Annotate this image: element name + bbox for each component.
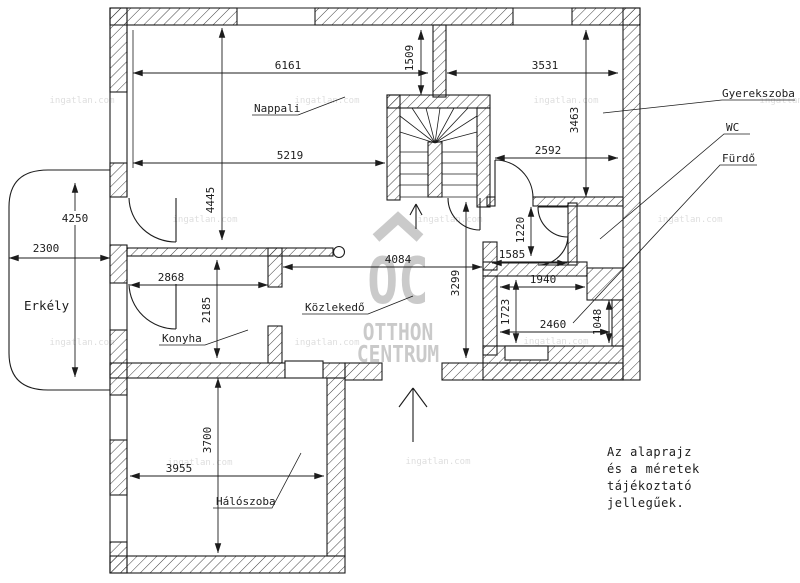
floorplan-document: ingatlan.comingatlan.comingatlan.cominga… — [0, 0, 800, 583]
watermark-site-text: ingatlan.com — [405, 457, 470, 467]
wall-segment — [533, 197, 623, 206]
door-arc-wc-lower — [538, 235, 568, 265]
stair-wall — [477, 108, 490, 207]
bath-lintel-opening — [505, 346, 548, 360]
room-label-erkely: Erkély — [24, 298, 70, 313]
dim-label-entry_stub: 1509 — [403, 45, 416, 72]
room-label-konyha: Konyha — [162, 332, 202, 345]
note-line-1: Az alaprajz — [607, 445, 692, 459]
dim-label-living_mid: 5219 — [277, 149, 304, 162]
dimensions: 6161353152192592230028684084158519402460… — [9, 28, 618, 553]
room-label-gyerekszoba: Gyerekszoba — [722, 87, 795, 100]
wall-segment — [327, 378, 345, 556]
wall-pillar — [268, 326, 282, 363]
note-line-4: jellegűek. — [607, 496, 684, 510]
wall-segment — [487, 197, 495, 206]
wall-segment — [110, 440, 127, 495]
dim-label-balcony_height: 4250 — [62, 212, 89, 225]
floor-plan-canvas: ingatlan.comingatlan.comingatlan.cominga… — [0, 0, 800, 583]
watermark-chevron-icon — [376, 218, 420, 238]
wall-end-post-icon — [334, 247, 345, 258]
wall-pillar — [268, 248, 282, 287]
watermark-site-text: ingatlan.com — [417, 215, 482, 225]
dim-label-wc_left: 1220 — [514, 217, 527, 244]
watermark-logo: OC OTTHON CENTRUM — [357, 218, 439, 368]
room-label-haloszoba: Hálószoba — [216, 495, 276, 508]
wall-segment — [110, 163, 127, 197]
wall-segment — [110, 245, 127, 283]
watermark-site-text: ingatlan.com — [49, 338, 114, 348]
balcony-outline — [9, 170, 110, 390]
stair-wall — [387, 95, 400, 200]
note-line-2: és a méretek — [607, 462, 700, 476]
wall-segment — [623, 8, 640, 380]
wall-segment — [323, 363, 345, 378]
wall-segment — [433, 25, 446, 97]
wall-segment — [110, 556, 345, 573]
wall-segment — [315, 8, 513, 25]
wall-segment — [612, 300, 623, 346]
disclaimer-note: Az alaprajz és a méretek tájékoztató jel… — [607, 445, 700, 510]
door-arc-wc-upper — [538, 207, 568, 237]
dim-label-hall_right: 3299 — [449, 270, 462, 297]
dim-label-bath_top: 1940 — [530, 273, 557, 286]
dim-label-bedroom_left: 3700 — [201, 427, 214, 454]
dim-label-living_left: 4445 — [204, 187, 217, 214]
watermark-site-text: ingatlan.com — [294, 338, 359, 348]
entrance-arrow-icon — [399, 388, 427, 442]
dim-label-living_top: 6161 — [275, 59, 302, 72]
room-label-wc: WC — [726, 121, 739, 134]
wall-segment — [110, 363, 285, 378]
door-arc-kitchen — [129, 284, 176, 329]
bedroom-door-opening — [285, 361, 323, 378]
dim-label-kids_right: 3463 — [568, 107, 581, 134]
dim-label-bath_bottom: 2460 — [540, 318, 567, 331]
staircase — [400, 108, 477, 229]
watermark-site-text: ingatlan.com — [533, 96, 598, 106]
note-line-3: tájékoztató — [607, 479, 692, 493]
dim-label-kitchen_left: 2185 — [200, 297, 213, 324]
stair-wall — [387, 95, 490, 108]
room-label-furdo: Fürdő — [722, 152, 755, 165]
door-arc-hall — [448, 198, 480, 230]
dim-label-balcony_width: 2300 — [33, 242, 60, 255]
wall-segment — [345, 363, 382, 380]
room-label-kozlekedo: Közlekedő — [305, 301, 365, 314]
wall-segment — [483, 346, 623, 380]
dim-label-kids_bottom: 2592 — [535, 144, 562, 157]
stair-winders — [400, 108, 477, 143]
watermark-site-text: ingatlan.com — [657, 215, 722, 225]
wall-segment — [587, 268, 623, 300]
dim-label-bedroom_bottom: 3955 — [166, 462, 193, 475]
door-arc-kids-room — [495, 160, 533, 198]
wall-segment — [110, 8, 237, 25]
watermark-site-text: ingatlan.com — [172, 215, 237, 225]
wall-segment — [483, 276, 497, 355]
dim-label-kitchen_top: 2868 — [158, 271, 185, 284]
wall-segment — [568, 203, 577, 265]
dim-label-kids_top: 3531 — [532, 59, 559, 72]
room-label-nappali: Nappali — [254, 102, 300, 115]
door-arc-balcony — [129, 198, 176, 242]
wall-segment — [110, 8, 127, 92]
watermark-site-text: ingatlan.com — [294, 96, 359, 106]
dim-label-hall_top: 4084 — [385, 253, 412, 266]
dim-label-bath_right: 1048 — [591, 309, 604, 336]
watermark-site-text: ingatlan.com — [49, 96, 114, 106]
wall-pillar — [483, 242, 497, 270]
dim-label-wc_top: 1585 — [499, 248, 526, 261]
wall-segment — [127, 248, 333, 256]
dim-label-bath_left: 1723 — [499, 299, 512, 326]
stair-newel — [428, 142, 442, 197]
